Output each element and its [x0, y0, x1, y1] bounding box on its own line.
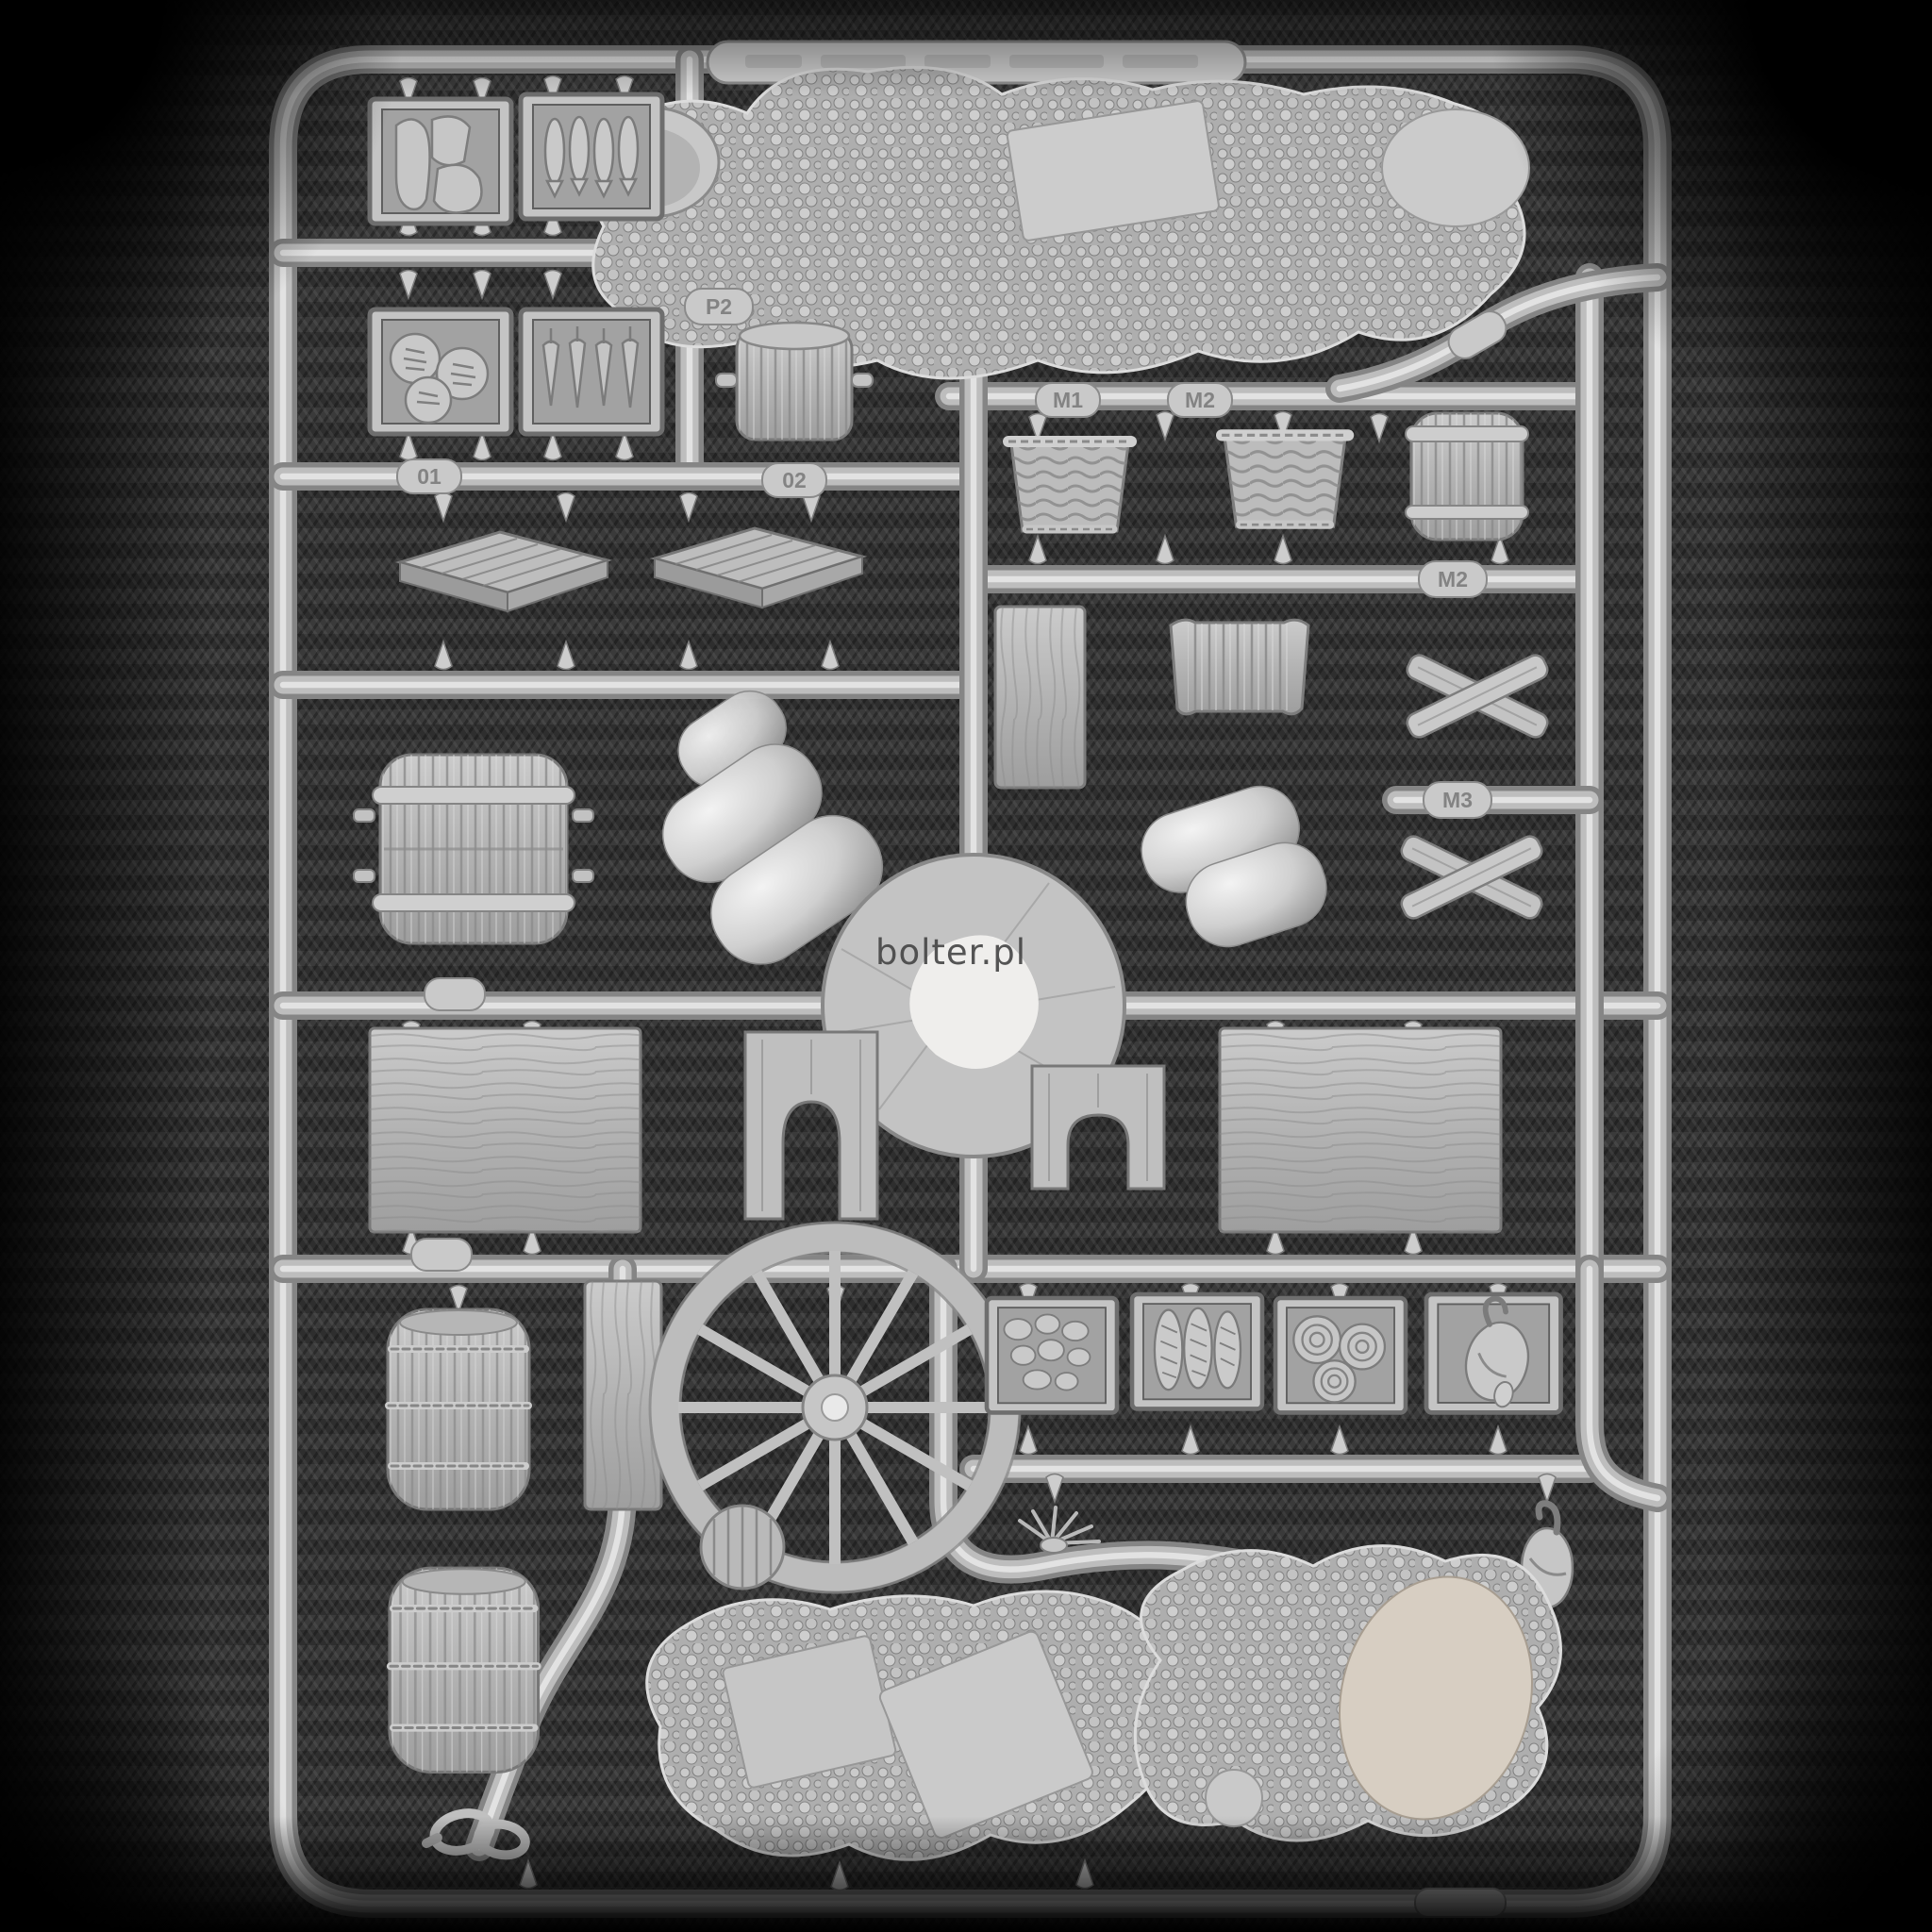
part-carrot-tray [521, 309, 662, 434]
part-plank-middle [995, 607, 1085, 788]
part-standing-barrel-2 [390, 1568, 539, 1772]
part-label-p2: P2 [685, 289, 753, 325]
part-rope-coil-tray [1275, 1298, 1406, 1412]
part-label-m3: M3 [1424, 782, 1491, 818]
part-poultry-tray [1426, 1294, 1561, 1412]
part-trestle-arch-2 [1032, 1066, 1164, 1189]
sprue-drawing: bolter.pl [0, 0, 1932, 1932]
part-textured-base-b [1135, 1546, 1560, 1840]
part-potato-tray [987, 1298, 1117, 1412]
svg-text:M1: M1 [1053, 388, 1083, 412]
part-wicker-basket-1 [1008, 441, 1131, 531]
svg-text:01: 01 [417, 464, 441, 489]
part-label-blank-2 [411, 1239, 472, 1271]
part-table-top-left [370, 1028, 641, 1232]
molding-tag [1415, 1889, 1506, 1917]
part-table-top-right [1220, 1028, 1501, 1232]
part-duckboard-1 [400, 532, 608, 611]
part-duckboard-2 [655, 528, 862, 608]
part-textured-base-a [647, 1591, 1171, 1859]
svg-text:M2: M2 [1438, 567, 1468, 591]
part-slatted-cask [1406, 413, 1528, 540]
part-baguette-tray [1132, 1294, 1262, 1408]
sprue-photograph: bolter.pl [0, 0, 1932, 1932]
part-label-02: 02 [762, 463, 826, 497]
part-label-blank-1 [425, 978, 485, 1010]
part-crossed-sticks-1 [1404, 652, 1550, 741]
part-cloth-roller [716, 323, 873, 440]
part-fish-tray [521, 94, 662, 219]
part-crossed-sticks-2 [1398, 833, 1544, 922]
svg-text:M3: M3 [1442, 788, 1473, 812]
part-trestle-arch-1 [745, 1032, 877, 1219]
part-wicker-basket-2 [1222, 435, 1348, 526]
part-sack-pile-2 [1132, 774, 1337, 965]
part-label-01: 01 [397, 459, 461, 493]
svg-text:P2: P2 [706, 294, 732, 319]
part-ribbed-barrel-lying [354, 755, 593, 943]
part-label-m2: M2 [1168, 383, 1232, 417]
part-rope-coil-disc [701, 1506, 784, 1589]
part-bread-tray [370, 309, 511, 434]
part-label-m2-lower: M2 [1419, 561, 1487, 597]
watermark-text: bolter.pl [875, 932, 1026, 973]
svg-text:M2: M2 [1185, 388, 1215, 412]
part-meat-tray [370, 99, 511, 224]
part-large-textured-base [583, 67, 1529, 378]
svg-text:02: 02 [782, 468, 807, 492]
part-standing-barrel-1 [388, 1309, 529, 1509]
part-wrapped-bale [1171, 620, 1308, 714]
part-label-m1: M1 [1036, 383, 1100, 417]
